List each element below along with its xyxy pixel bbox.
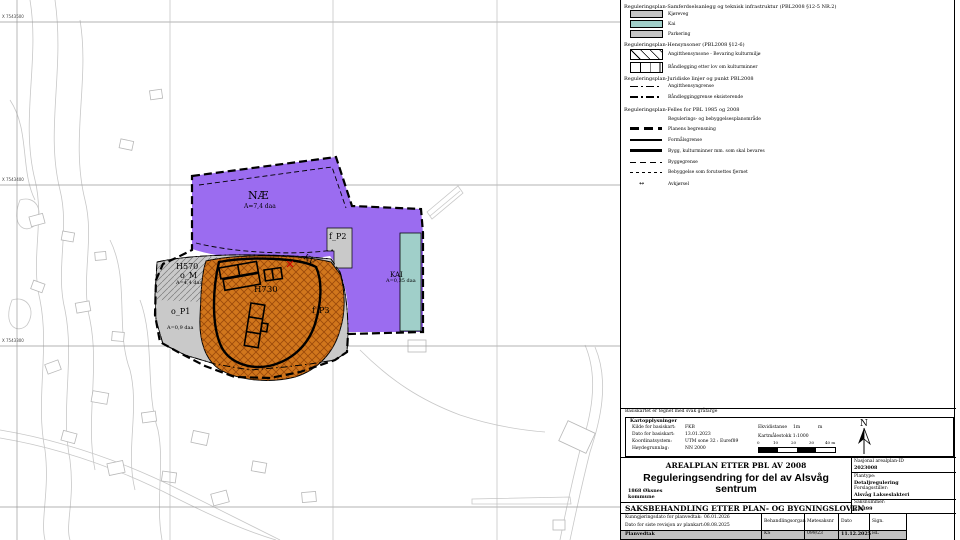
planvedtak-label: Planvedtak xyxy=(625,532,655,537)
scalebar-tick-20: 20 xyxy=(791,441,796,445)
grid-label-north-3: X 7543300 xyxy=(2,339,24,343)
revision-date: 08.08.2025 xyxy=(704,524,730,529)
map-canvas: X 7543500 X 7543400 X 7543300 NÆ A=7,4 d… xyxy=(0,0,620,540)
table-col-line-4 xyxy=(869,513,870,540)
zone-label-h570: H570 xyxy=(176,263,198,271)
map-info-source-label: Kilde for basiskart: xyxy=(632,426,676,431)
legend-label-bandlegging: Båndlegging etter lov om kulturminner xyxy=(668,65,758,70)
map-info-height-label: Høydegrunnlag: xyxy=(632,447,669,452)
legend-label-bandlegginggrense: Båndlegginggrense eksisterende xyxy=(668,95,743,100)
grid-label-north-2: X 7543400 xyxy=(2,178,24,182)
zone-area-kai: A=0,35 daa xyxy=(386,279,416,284)
ekvidistanse-unit: m xyxy=(818,426,822,431)
table-col-line-2 xyxy=(804,513,805,540)
legend-label-bygg-bevares: Bygg, kulturminner mm. som skal bevares xyxy=(668,149,765,154)
angitthensynsone-swatch xyxy=(630,49,663,60)
scalebar-tick-10: 10 xyxy=(773,441,778,445)
zone-area-h570: A=4,4 daa xyxy=(176,281,203,286)
table-col-line-1 xyxy=(761,513,762,540)
map-info-source-value: FKB xyxy=(685,426,695,431)
bandlegging-swatch xyxy=(630,62,663,73)
scalebar-tick-40: 40 m xyxy=(825,441,835,445)
legend-label-angitthensynsone: Angitthensynsone - Bevaring kulturmiljø xyxy=(668,52,760,57)
col-header-organ: Behandlingsorgan xyxy=(764,520,806,525)
announce-date: 06.01.2026 xyxy=(704,516,730,521)
zone-label-fp3: f_P3 xyxy=(312,307,329,315)
zone-label-h570-om: o_M xyxy=(180,272,197,280)
legend-label-angitthensyngrense: Angitthensyngrense xyxy=(668,84,714,89)
planvedtak-date: 11.12.2025 xyxy=(841,532,871,537)
case-value: 23/399 xyxy=(854,507,872,512)
proposer-value: Alsvåg Lakseslakteri xyxy=(854,493,909,498)
map-info-date-label: Dato for basiskart: xyxy=(632,433,675,438)
col-header-sign: Sign. xyxy=(872,520,884,525)
scale-label: Kartmålestokk 1:1000 xyxy=(758,435,809,440)
planvedtak-sign: HL xyxy=(872,532,879,537)
map-info-coordsys-label: Koordinatsystem: xyxy=(632,440,672,445)
legend-heading-felles: Reguleringsplan-Felles for PBL 1985 og 2… xyxy=(624,107,739,113)
parkering-swatch xyxy=(630,30,663,38)
titleblock-top-border xyxy=(621,457,956,458)
zone-label-h730: H730 xyxy=(254,286,278,295)
grid-label-north-1: X 7543500 xyxy=(2,15,24,19)
legend-label-bebyggelse-fjernet: Bebyggelse som forutsettes fjernet xyxy=(668,170,748,175)
zone-label-op1: o_P1 xyxy=(171,308,190,316)
planens-begrensning-line-symbol xyxy=(630,127,662,130)
map-info-coordsys-value: UTM sone 32 : Euref89 xyxy=(685,440,738,445)
right-col-divider-1 xyxy=(851,472,956,473)
map-info-date-value: 13.01.2023 xyxy=(685,433,711,438)
case-label: Saksnummer: xyxy=(854,501,885,506)
byggegrense-line-symbol xyxy=(630,162,662,163)
kjoreveg-swatch xyxy=(630,10,663,18)
col-header-case: Møtesaksnr xyxy=(807,520,834,525)
avkjorsel-arrow-icon: ↔ xyxy=(639,180,643,187)
north-arrow-icon: N xyxy=(854,418,874,456)
law-title: AREALPLAN ETTER PBL AV 2008 xyxy=(621,462,851,470)
plantype-label: Plantype: xyxy=(854,475,875,480)
legend-label-parkering: Parkering xyxy=(668,32,690,37)
formalsgrense-line-symbol xyxy=(630,139,662,141)
processing-row-top-border xyxy=(621,502,851,503)
legend-label-planens-begrensning: Planens begrensning xyxy=(668,127,716,132)
scale-bar xyxy=(758,447,836,453)
scalebar-tick-30: 30 xyxy=(809,441,814,445)
municipality: 1868 Øksnes kommune xyxy=(628,489,670,501)
col-header-date: Dato xyxy=(841,520,852,525)
legend-label-planomrade: Regulerings- og bebyggelsesplanområde xyxy=(668,117,761,122)
plan-id-value: 2023008 xyxy=(854,466,877,471)
bebyggelse-fjernet-line-symbol xyxy=(630,172,662,173)
ekvidistanse-value: 1m xyxy=(793,426,800,431)
plan-document: X 7543500 X 7543400 X 7543300 NÆ A=7,4 d… xyxy=(0,0,960,540)
processing-title: SAKSBEHANDLING ETTER PLAN- OG BYGNINGSLO… xyxy=(625,505,864,513)
planvedtak-case: 099/23 xyxy=(807,532,823,537)
svg-text:N: N xyxy=(860,419,868,429)
legend-label-formalsgrense: Formålsgrense xyxy=(668,138,702,143)
bandlegginggrense-line-symbol xyxy=(630,96,662,98)
bygg-bevares-line-symbol xyxy=(630,149,662,152)
legend-panel: Reguleringsplan-Samferdselsanlegg og tek… xyxy=(620,0,955,540)
ekvidistanse-label: Ekvidistanse xyxy=(758,426,787,431)
legend-heading-juridiske-linjer: Reguleringsplan-Juridiske linjer og punk… xyxy=(624,76,754,82)
legend-label-kai: Kai xyxy=(668,22,675,27)
table-col-line-5 xyxy=(906,513,907,540)
legend-label-avkjorsel: Avkjørsel xyxy=(668,182,689,187)
table-col-line-3 xyxy=(838,513,839,540)
revision-label: Dato for siste revisjon av plankart: xyxy=(625,524,704,529)
zone-label-nae: NÆ xyxy=(248,190,269,201)
zoning-map-svg xyxy=(0,0,620,540)
zone-area-op1: A=0,9 daa xyxy=(167,326,194,331)
plan-id-label: Nasjonal arealplan-ID xyxy=(854,460,904,465)
map-info-heading: Kartopplysninger xyxy=(630,419,677,424)
announce-label: Kunngjøringsdato for planvedtak: xyxy=(625,516,702,521)
legend-heading-hensynsoner: Reguleringsplan-Hensynsoner (PBL2008 §12… xyxy=(624,42,745,48)
basemap-note: Basiskartet er tegnet med svak gråfarge xyxy=(625,410,717,415)
planvedtak-organ: KS xyxy=(764,532,770,537)
scalebar-tick-0: 0 xyxy=(757,441,760,445)
legend-label-byggegrense: Byggegrense xyxy=(668,160,698,165)
angitthensyngrense-line-symbol xyxy=(630,86,662,87)
kai-swatch xyxy=(630,20,663,28)
zone-area-nae: A=7,4 daa xyxy=(244,204,276,210)
map-info-height-value: NN 2000 xyxy=(685,447,706,452)
legend-label-kjoreveg: Kjøreveg xyxy=(668,12,688,17)
zone-label-fp2: f_P2 xyxy=(329,233,346,241)
proposer-label: Forslagsstiller: xyxy=(854,487,888,492)
